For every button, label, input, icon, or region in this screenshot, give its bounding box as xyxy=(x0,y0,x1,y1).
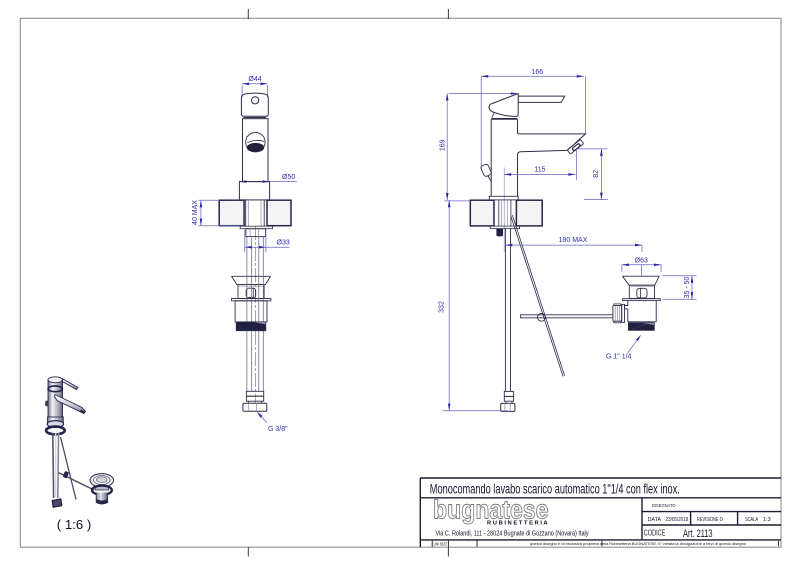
svg-text:23/05/2018: 23/05/2018 xyxy=(666,517,689,523)
svg-text:DATA: DATA xyxy=(648,517,662,523)
svg-text:REVISIONE: REVISIONE xyxy=(697,517,719,523)
svg-text:Ø63: Ø63 xyxy=(635,257,648,264)
svg-text:0: 0 xyxy=(720,517,723,523)
svg-text:UNI 8187: UNI 8187 xyxy=(434,541,448,546)
svg-text:( 1:6 ): ( 1:6 ) xyxy=(57,517,91,532)
svg-text:CODICE: CODICE xyxy=(644,528,666,538)
svg-text:G 1" 1/4: G 1" 1/4 xyxy=(606,354,632,361)
svg-text:Via C. Rolandi, 111 - 28024 Bu: Via C. Rolandi, 111 - 28024 Bugnate di G… xyxy=(436,531,589,538)
svg-text:DISEGNATO: DISEGNATO xyxy=(652,503,676,509)
svg-text:Ø44: Ø44 xyxy=(248,76,261,83)
svg-text:35 - 50: 35 - 50 xyxy=(684,276,691,298)
svg-text:Monocomando lavabo scarico aut: Monocomando lavabo scarico automatico 1"… xyxy=(430,481,680,496)
svg-text:332: 332 xyxy=(439,301,446,313)
svg-text:R U B I N E T T E R I A: R U B I N E T T E R I A xyxy=(487,520,548,526)
svg-text:166: 166 xyxy=(532,69,544,76)
svg-text:questo disegno è di esclusiva: questo disegno è di esclusiva proprietà … xyxy=(530,541,747,546)
svg-text:Art. 2113: Art. 2113 xyxy=(683,528,713,540)
svg-text:180 MAX: 180 MAX xyxy=(559,237,588,244)
svg-text:82: 82 xyxy=(593,170,600,178)
svg-text:G 3/8": G 3/8" xyxy=(268,426,288,433)
svg-text:SCALA: SCALA xyxy=(745,517,758,523)
svg-text:Ø33: Ø33 xyxy=(277,239,290,246)
svg-text:Ø50: Ø50 xyxy=(282,174,295,181)
svg-text:169: 169 xyxy=(440,139,447,151)
svg-text:40 MAX: 40 MAX xyxy=(192,200,199,225)
svg-text:1:3: 1:3 xyxy=(763,517,771,523)
svg-text:115: 115 xyxy=(534,167,545,174)
